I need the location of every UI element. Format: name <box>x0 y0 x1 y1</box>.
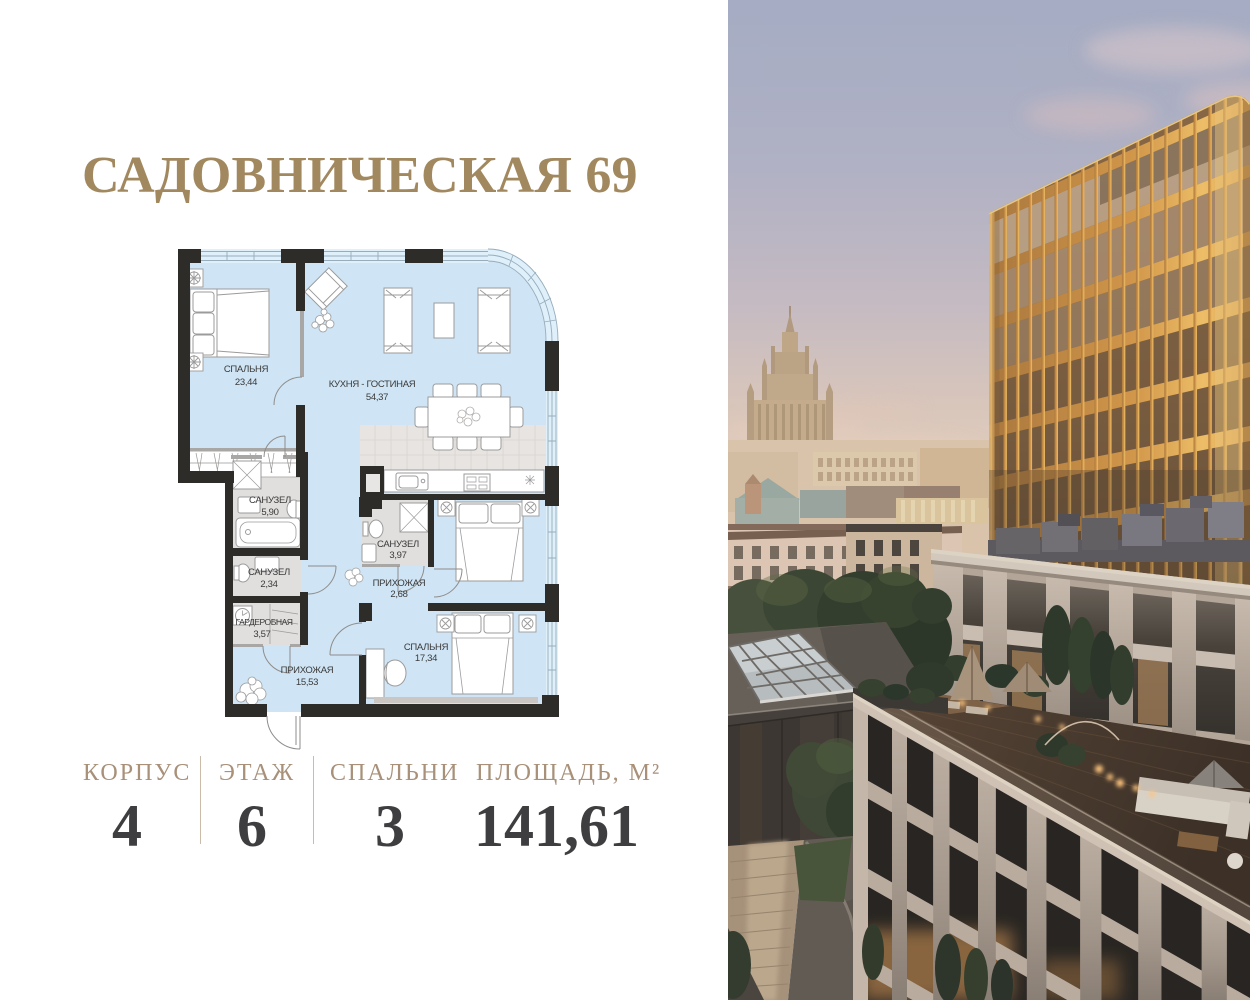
svg-text:САНУЗЕЛ: САНУЗЕЛ <box>377 539 419 550</box>
svg-text:ПРИХОЖАЯ: ПРИХОЖАЯ <box>281 665 334 676</box>
svg-text:КУХНЯ - ГОСТИНАЯ: КУХНЯ - ГОСТИНАЯ <box>329 379 416 390</box>
svg-text:САНУЗЕЛ: САНУЗЕЛ <box>248 567 290 578</box>
svg-text:ГАРДЕРОБНАЯ: ГАРДЕРОБНАЯ <box>235 617 292 627</box>
svg-text:САНУЗЕЛ: САНУЗЕЛ <box>249 495 291 506</box>
svg-text:ПРИХОЖАЯ: ПРИХОЖАЯ <box>373 578 426 589</box>
svg-text:3,97: 3,97 <box>389 550 406 561</box>
svg-text:15,53: 15,53 <box>296 677 318 688</box>
svg-text:СПАЛЬНЯ: СПАЛЬНЯ <box>224 364 269 375</box>
svg-text:23,44: 23,44 <box>235 377 257 388</box>
svg-text:3,57: 3,57 <box>253 629 270 640</box>
svg-text:5,90: 5,90 <box>261 507 278 518</box>
svg-text:17,34: 17,34 <box>415 653 437 664</box>
svg-text:2,34: 2,34 <box>260 579 277 590</box>
svg-text:2,68: 2,68 <box>390 589 407 600</box>
svg-text:54,37: 54,37 <box>366 392 388 403</box>
svg-text:СПАЛЬНЯ: СПАЛЬНЯ <box>404 642 449 653</box>
